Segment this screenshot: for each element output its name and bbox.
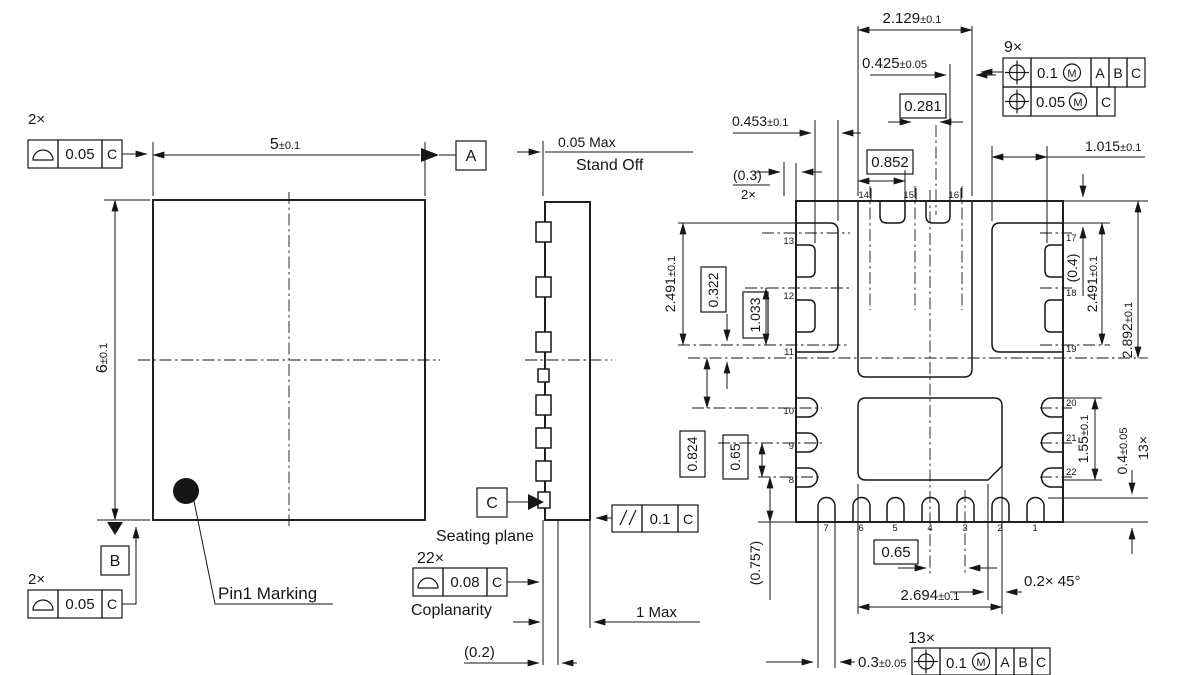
parallelism-datum: C — [683, 511, 693, 527]
dim-2892: 2.892±0.1 — [1119, 201, 1138, 358]
top-view: Pin1 Marking 5±0.1 A 6±0.1 B 2× — [28, 111, 486, 618]
dim-2694: 2.694±0.1 — [858, 587, 1002, 607]
dim-tol: ±0.05 — [900, 59, 927, 71]
pin-label: 6 — [858, 523, 863, 534]
dim-04-lead-length: 0.4±0.05 13× — [1114, 428, 1151, 554]
fcf-value: 0.1 — [946, 655, 967, 672]
basic-dim-value: 0.322 — [705, 272, 721, 307]
dim-value: 0.3 — [858, 654, 879, 671]
fcf-datum: C — [1101, 94, 1111, 110]
pin-label: 12 — [783, 291, 794, 302]
pin1-marking-label: Pin1 Marking — [218, 584, 317, 603]
parallelism-icon — [629, 510, 636, 525]
dim-value: 2.694 — [901, 587, 939, 604]
dim-value: 2.892 — [1119, 323, 1135, 358]
position-icon — [914, 650, 938, 674]
dim-2491-right: 2.491±0.1 — [1084, 223, 1102, 345]
exposed-pads — [796, 201, 1063, 480]
parallelism-value: 0.1 — [650, 511, 671, 528]
dim-height-tol: ±0.1 — [98, 343, 110, 364]
dim-tol: ±0.1 — [666, 256, 678, 277]
dim-tol: ±0.1 — [920, 14, 941, 26]
count-22x: 22× — [417, 550, 444, 567]
fcf-datum: C — [1131, 65, 1141, 81]
fcf-position-9x: 9× 0.1 M A B C 0.05 — [981, 39, 1145, 116]
coplanarity-label: Coplanarity — [411, 602, 492, 619]
fcf-position-13x: 13× 0.1 M A B C — [908, 630, 1050, 675]
profile-of-surface-icon — [33, 600, 53, 610]
dim-tol: ±0.1 — [938, 591, 959, 603]
pad-tab — [1045, 245, 1063, 277]
basic-dim-value: 0.852 — [871, 154, 909, 171]
seating-plane-callout: C Seating plane — [436, 488, 544, 545]
dim-chamfer: 0.2× 45° — [950, 573, 1080, 592]
profile-of-surface-icon — [418, 578, 438, 588]
datum-a-triangle-icon — [421, 148, 439, 162]
datum-b-label: B — [110, 553, 121, 570]
fcf-bottom-value: 0.05 — [65, 596, 94, 613]
fcf-datum: B — [1018, 654, 1027, 670]
pin-label: 8 — [789, 475, 794, 486]
position-icon — [1005, 90, 1029, 114]
pin-label: 14 — [858, 190, 869, 201]
svg-text:0.453±0.1: 0.453±0.1 — [732, 113, 788, 129]
standoff-label: Stand Off — [576, 157, 644, 174]
centerlines — [138, 192, 440, 526]
dim-1015: 1.015±0.1 — [992, 138, 1145, 157]
dim-value: 0.453 — [732, 113, 767, 129]
pin-label: 4 — [927, 523, 932, 534]
fcf-datum: C — [1036, 654, 1046, 670]
dim-width: 5±0.1 A — [153, 136, 486, 196]
fcf-bottom-datum: C — [107, 596, 117, 612]
dim-155: 1.55±0.1 — [1075, 398, 1095, 480]
dim-065-left-basic: 0.65 — [723, 435, 762, 479]
basic-dim-value: 1.033 — [747, 297, 763, 332]
dim-value: 2.491 — [1084, 277, 1100, 312]
chamfer-dim-value: 0.2× 45° — [1024, 573, 1080, 590]
fcf-datum: A — [1095, 65, 1105, 81]
count-2x-bottom: 2× — [28, 571, 45, 588]
dim-0322-basic: 0.322 — [701, 267, 727, 389]
pin-label: 1 — [1032, 523, 1037, 534]
pin-label: 7 — [823, 523, 828, 534]
fcf-value: 0.05 — [1036, 94, 1065, 111]
basic-dim-value: 0.824 — [684, 436, 700, 471]
count-2x: 2× — [741, 187, 756, 202]
svg-text:1.015±0.1: 1.015±0.1 — [1085, 138, 1141, 154]
dim-0824-basic: 0.824 — [680, 358, 707, 477]
dim-height: 6±0.1 B — [94, 200, 150, 575]
fcf-value: 0.1 — [1037, 65, 1058, 82]
edge-leads — [796, 398, 1063, 522]
pin-label: 18 — [1066, 288, 1077, 299]
coplanarity-value: 0.08 — [450, 574, 479, 591]
package-outline-drawing: Pin1 Marking 5±0.1 A 6±0.1 B 2× — [0, 0, 1200, 675]
count-9x: 9× — [1004, 39, 1022, 56]
count-13x-side: 13× — [1135, 436, 1151, 460]
fcf-coplanarity: 22× 0.08 C Coplanarity — [411, 550, 539, 619]
package-bottom-outline — [796, 201, 1063, 522]
svg-text:2.491±0.1: 2.491±0.1 — [1084, 256, 1100, 312]
dim-value: 1.55 — [1075, 436, 1091, 463]
dim-tol: ±0.05 — [879, 658, 906, 670]
seating-plane-label: Seating plane — [436, 528, 534, 545]
dim-02-label: (0.2) — [464, 644, 495, 661]
pin-label: 3 — [962, 523, 967, 534]
bottom-view: 14 15 16 13 12 11 10 9 8 17 18 19 20 21 … — [662, 10, 1151, 675]
fcf-datum: B — [1113, 65, 1122, 81]
basic-dim-value: 0.65 — [881, 544, 910, 561]
dim-width-value: 5 — [270, 136, 279, 153]
dim-tol: ±0.1 — [1123, 302, 1135, 323]
dim-standoff: 0.05 Max Stand Off — [517, 134, 693, 196]
datum-a-label: A — [466, 148, 477, 165]
count-2x-top: 2× — [28, 111, 45, 128]
pad-tab — [796, 300, 815, 332]
ref-dim-value: (0.4) — [1064, 254, 1080, 283]
dim-0453: 0.453±0.1 — [732, 113, 861, 133]
dim-value: 1.015 — [1085, 138, 1120, 154]
ref-dim-value: (0.757) — [747, 541, 763, 585]
fcf-profile-bottom: 2× 0.05 C — [28, 527, 136, 618]
pin-label: 11 — [784, 347, 794, 358]
svg-text:2.892±0.1: 2.892±0.1 — [1119, 302, 1135, 358]
pin-label: 19 — [1066, 344, 1077, 355]
fcf-top-value: 0.05 — [65, 146, 94, 163]
dim-tol: ±0.1 — [767, 117, 788, 129]
drawing-canvas: Pin1 Marking 5±0.1 A 6±0.1 B 2× — [0, 0, 1200, 675]
dim-tol: ±0.1 — [1088, 256, 1100, 277]
svg-text:6±0.1: 6±0.1 — [94, 343, 111, 373]
count-13x: 13× — [908, 630, 935, 647]
basic-dim-value: 0.65 — [727, 443, 743, 470]
dim-tol: ±0.05 — [1118, 428, 1130, 455]
svg-text:2.491±0.1: 2.491±0.1 — [662, 256, 678, 312]
datum-b-triangle-icon — [107, 522, 123, 535]
pin-label: 13 — [783, 236, 794, 247]
standoff-value: 0.05 Max — [558, 134, 616, 150]
fcf-profile-top: 2× 0.05 C — [28, 111, 147, 168]
pin-label: 17 — [1066, 233, 1077, 244]
dim-value: 2.491 — [662, 277, 678, 312]
dim-0757-ref: (0.757) — [747, 477, 770, 585]
dim-2129: 2.129±0.1 — [858, 10, 972, 30]
svg-text:5±0.1: 5±0.1 — [270, 136, 300, 153]
parallelism-icon — [620, 510, 627, 525]
profile-of-surface-icon — [33, 150, 53, 160]
dim-0425: 0.425±0.05 — [862, 55, 996, 75]
fcf-datum: A — [1000, 654, 1010, 670]
pin-label: 10 — [783, 406, 794, 417]
dim-1max-label: 1 Max — [636, 604, 677, 621]
fcf-top-datum: C — [107, 146, 117, 162]
coplanarity-datum: C — [492, 574, 502, 590]
side-leads — [536, 222, 551, 508]
svg-text:1.55±0.1: 1.55±0.1 — [1075, 415, 1091, 464]
pad-tab — [1045, 300, 1063, 332]
dim-03-lead-width: 0.3±0.05 — [766, 654, 906, 671]
dim-tol: ±0.1 — [1079, 415, 1091, 436]
dim-03-ref: (0.3) 2× — [733, 167, 822, 202]
dim-065-bottom-basic: 0.65 — [874, 540, 997, 568]
dim-tol: ±0.1 — [1120, 142, 1141, 154]
dim-2491-left: 2.491±0.1 — [662, 223, 683, 345]
dim-height-value: 6 — [94, 364, 111, 373]
pad-tab — [796, 245, 815, 277]
basic-dim-value: 0.281 — [904, 98, 942, 115]
pin1-marking-dot — [173, 478, 199, 504]
pin-label: 9 — [789, 441, 794, 452]
dim-width-tol: ±0.1 — [279, 140, 300, 152]
fcf-parallelism: 0.1 C — [596, 505, 698, 532]
svg-text:2.129±0.1: 2.129±0.1 — [883, 10, 942, 27]
side-view: 0.05 Max Stand Off C Seating plane 0.1 C… — [411, 134, 700, 665]
svg-text:2.694±0.1: 2.694±0.1 — [901, 587, 960, 604]
pin-label: 20 — [1066, 398, 1077, 409]
material-condition-label: M — [976, 657, 985, 669]
svg-text:0.3±0.05: 0.3±0.05 — [858, 654, 906, 671]
dim-1033-basic: 1.033 — [743, 288, 768, 345]
pin-label: 22 — [1066, 467, 1077, 478]
material-condition-label: M — [1073, 97, 1082, 109]
dim-value: 0.425 — [862, 55, 900, 72]
ref-dim-value: (0.3) — [733, 167, 762, 183]
position-icon — [1005, 61, 1029, 85]
dim-value: 0.4 — [1114, 455, 1130, 475]
material-condition-label: M — [1067, 68, 1076, 80]
dim-value: 2.129 — [883, 10, 921, 27]
pad-notch — [880, 201, 905, 223]
pin-label: 5 — [892, 523, 897, 534]
datum-c-label: C — [486, 495, 498, 512]
svg-text:0.4±0.05: 0.4±0.05 — [1114, 428, 1130, 475]
dim-0281-basic: 0.281 — [888, 94, 963, 122]
svg-text:0.425±0.05: 0.425±0.05 — [862, 55, 927, 72]
